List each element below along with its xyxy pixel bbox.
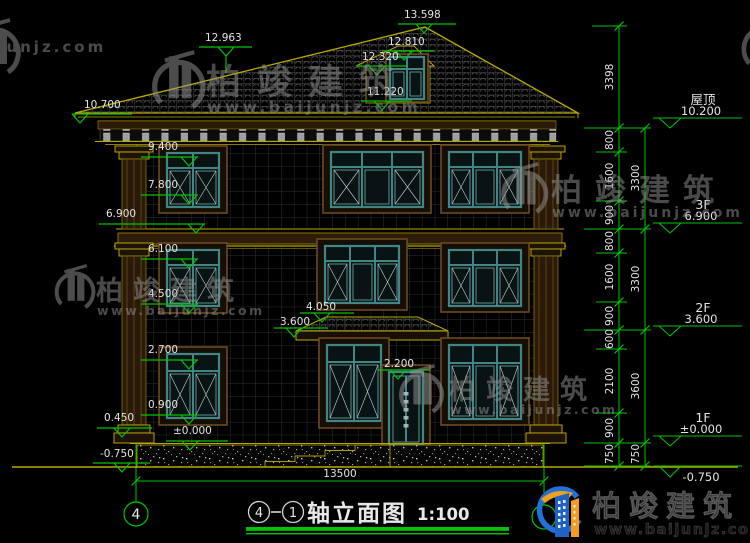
level-value: 3.600 bbox=[685, 312, 718, 326]
dim-value: 900 bbox=[604, 418, 616, 438]
cad-elevation-drawing: 13.598 12.963 12.810 12.320 11.220 10.70… bbox=[0, 0, 750, 543]
dim-label: 7.800 bbox=[148, 179, 178, 191]
drawing-canvas: 13.598 12.963 12.810 12.320 11.220 10.70… bbox=[0, 0, 750, 543]
watermark-brand: 柏竣建筑 bbox=[206, 62, 410, 103]
dim-value: 3398 bbox=[604, 64, 616, 91]
dim-value: 1600 bbox=[604, 264, 616, 291]
title-axis-start: 4 bbox=[255, 506, 263, 521]
dim-value: 750 bbox=[630, 444, 642, 464]
title-scale: 1:100 bbox=[417, 505, 470, 524]
dim-value: 3300 bbox=[630, 266, 642, 293]
dim-label: 4.050 bbox=[306, 301, 336, 313]
level-value: 10.200 bbox=[681, 104, 721, 118]
watermark-url: www.baijunjz.com bbox=[0, 38, 106, 56]
dim-value: 800 bbox=[604, 130, 616, 150]
dim-label: 0.450 bbox=[104, 412, 134, 424]
title-text: 轴立面图 bbox=[307, 500, 407, 527]
watermark-url: www.baijunjz.com bbox=[207, 98, 421, 116]
dim-label: 2.200 bbox=[384, 358, 414, 370]
brand-logo-url: www.baijunjz.com bbox=[594, 522, 750, 538]
dim-label: 9.400 bbox=[148, 141, 178, 153]
dim-value: 2100 bbox=[604, 368, 616, 395]
dim-value: 750 bbox=[604, 444, 616, 464]
dim-label: 12.810 bbox=[388, 36, 425, 48]
title-underline-thin bbox=[246, 533, 509, 534]
window-2f-right bbox=[441, 243, 529, 312]
dim-value: 800 bbox=[604, 231, 616, 251]
axis-number: 4 bbox=[132, 507, 141, 523]
dim-label: 0.900 bbox=[148, 399, 178, 411]
dim-label: 6.900 bbox=[106, 208, 136, 220]
window-3f-center bbox=[323, 145, 431, 213]
watermark-brand: 柏竣建筑 bbox=[551, 173, 727, 209]
title-axis-end: 1 bbox=[289, 506, 297, 521]
brand-logo-name: 柏竣建筑 bbox=[592, 489, 740, 523]
watermark-url: www.baijunjz.com bbox=[97, 303, 265, 318]
dim-label: 3.600 bbox=[280, 316, 310, 328]
dim-label: 10.700 bbox=[84, 99, 121, 111]
watermark-url: www.baijunjz.com bbox=[450, 402, 618, 417]
watermark-url: www.baijunjz.com bbox=[552, 205, 743, 221]
title-underline bbox=[246, 527, 509, 531]
window-1f-left bbox=[159, 347, 227, 425]
level-value: -0.750 bbox=[682, 470, 719, 484]
dim-value: 3600 bbox=[630, 373, 642, 400]
dim-label: 2.700 bbox=[148, 344, 178, 356]
dim-label: 13.598 bbox=[404, 9, 441, 21]
window-1f-center bbox=[319, 338, 389, 428]
window-3f-right bbox=[441, 145, 529, 213]
dim-label: 12.320 bbox=[362, 51, 399, 63]
level-value: ±0.000 bbox=[680, 422, 723, 436]
span-dimension: 13500 bbox=[323, 468, 356, 480]
dim-label: 12.963 bbox=[205, 32, 242, 44]
dim-value: 600 bbox=[604, 329, 616, 349]
dim-label: -0.750 bbox=[100, 448, 134, 460]
dim-value: 900 bbox=[604, 306, 616, 326]
dim-label: ±0.000 bbox=[173, 425, 212, 437]
window-2f-center bbox=[317, 239, 407, 310]
dim-label: 6.100 bbox=[148, 243, 178, 255]
